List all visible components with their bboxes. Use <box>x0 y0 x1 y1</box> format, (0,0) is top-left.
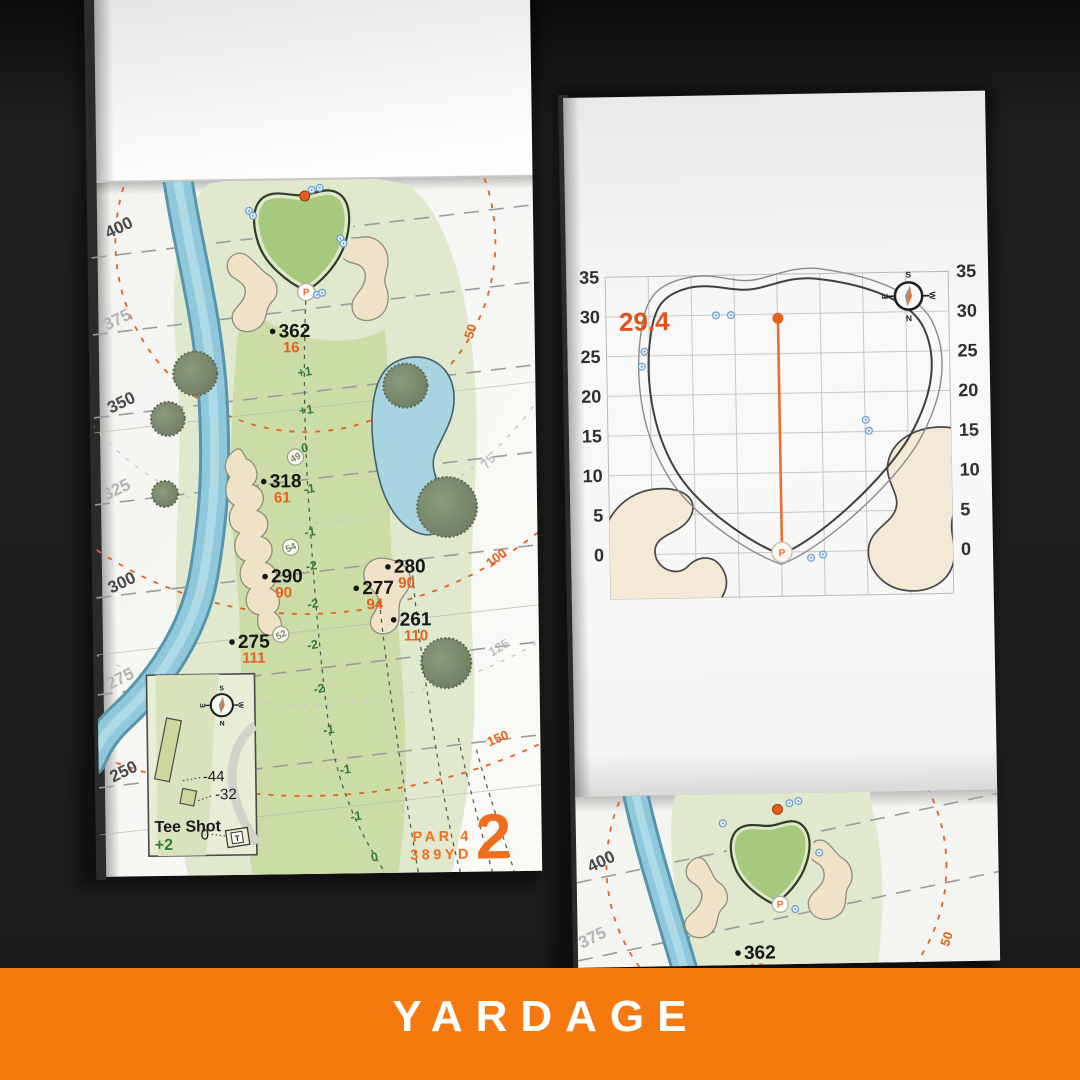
pin-distance: 110 <box>404 627 428 644</box>
elevation-mark: -1 <box>322 722 335 738</box>
back-tee-offset: -44 <box>203 768 225 785</box>
pin-letter: P <box>303 287 310 298</box>
pin-distance: 61 <box>274 489 291 506</box>
elevation-mark: -2 <box>305 558 318 574</box>
tick-label: 25 <box>957 340 977 360</box>
elevation-mark: -2 <box>306 596 319 612</box>
pin-letter: P <box>777 900 784 911</box>
tick-label: 25 <box>580 347 600 367</box>
mid-tee-offset: -32 <box>215 786 237 803</box>
hole-yardage: 389YD <box>410 847 472 864</box>
tick-label: 15 <box>582 426 602 446</box>
elevation-mark: -2 <box>313 681 326 697</box>
pin-distance: 90 <box>275 584 292 601</box>
pin-distance: 94 <box>366 596 384 613</box>
pin-distance: 16 <box>283 339 300 356</box>
green-depth-value: 29.4 <box>619 306 671 337</box>
flipped-blank-page <box>94 0 533 183</box>
pin-marker: P <box>297 283 314 300</box>
elevation-mark: -1 <box>303 481 316 497</box>
pin-distance: 90 <box>398 574 415 591</box>
elevation-mark: -1 <box>339 762 352 778</box>
tick-label: 20 <box>958 380 978 400</box>
tick-label: 5 <box>593 506 603 526</box>
elevation-mark: +1 <box>298 402 314 418</box>
banner-title: YARDAGE <box>393 992 700 1041</box>
scene: S N W E <box>0 0 1080 1080</box>
tick-label: 30 <box>580 307 600 327</box>
tee-marker-box: T <box>225 827 249 847</box>
pin-letter: P <box>779 548 786 559</box>
green-chart-page: 35 30 25 20 15 10 5 0 35 30 25 20 15 10 … <box>563 91 997 800</box>
aim-dot <box>772 804 782 814</box>
tick-label: 5 <box>960 499 970 519</box>
elevation-mark: -1 <box>349 809 362 825</box>
tick-label: 20 <box>581 386 601 406</box>
par-label: PAR 4 <box>412 829 471 846</box>
mid-tee-box <box>180 788 197 805</box>
pin-marker: P <box>772 896 788 912</box>
hole-number: 2 <box>475 800 512 872</box>
inset-title: Tee Shot <box>154 818 221 836</box>
tick-label: 10 <box>959 459 979 479</box>
tick-label: 35 <box>956 261 976 281</box>
pin-distance: 111 <box>242 650 266 667</box>
tick-label: 30 <box>957 301 977 321</box>
tick-label: 15 <box>959 420 979 440</box>
yardage-book-photo: S N W E <box>0 0 1080 1080</box>
aim-dot <box>300 191 310 201</box>
tick-label: 35 <box>579 267 599 287</box>
tick-label: 0 <box>594 545 604 565</box>
tick-label: 0 <box>961 539 971 559</box>
elevation-mark: -1 <box>303 524 316 540</box>
tick-label: 10 <box>582 466 602 486</box>
chart-pin-marker: P <box>772 542 792 562</box>
tee-shot-inset: -44 -32 0 Tee Shot +2 T <box>146 674 257 856</box>
elevation-mark: +1 <box>297 364 313 380</box>
yardage-banner: YARDAGE <box>0 968 1080 1080</box>
elevation-mark: -2 <box>306 637 319 653</box>
tee-shot-value: +2 <box>155 837 174 854</box>
right-booklet: 35 30 25 20 15 10 5 0 35 30 25 20 15 10 … <box>558 88 1001 1040</box>
